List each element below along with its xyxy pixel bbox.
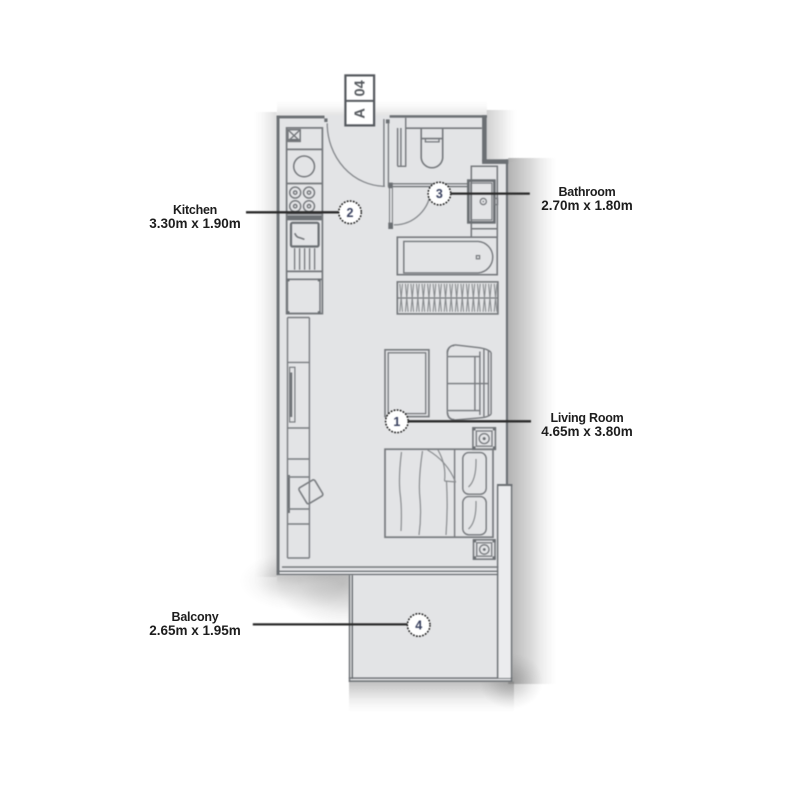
svg-text:04: 04 bbox=[353, 80, 369, 96]
svg-text:1: 1 bbox=[393, 415, 400, 429]
svg-text:3: 3 bbox=[436, 187, 443, 201]
svg-text:4: 4 bbox=[415, 619, 422, 633]
svg-text:2: 2 bbox=[347, 206, 354, 220]
svg-text:A: A bbox=[353, 108, 369, 119]
